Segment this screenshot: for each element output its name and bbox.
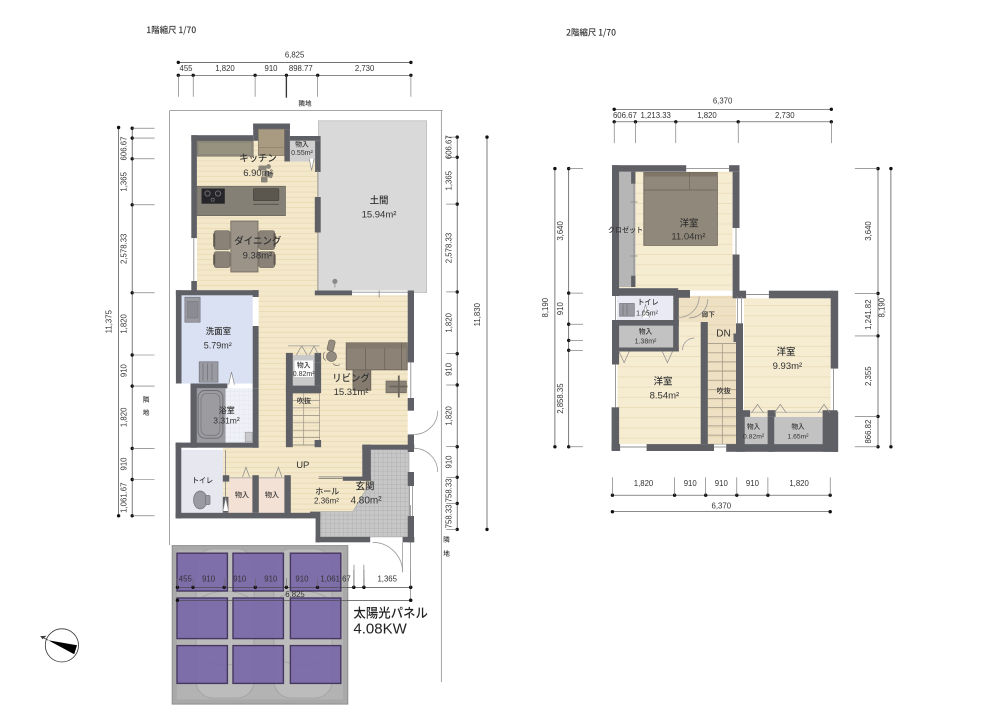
svg-text:606.67: 606.67 (613, 111, 637, 120)
svg-text:6,825: 6,825 (285, 590, 305, 599)
svg-text:910: 910 (264, 575, 278, 584)
svg-text:6,825: 6,825 (285, 51, 305, 60)
svg-text:UP: UP (296, 460, 309, 471)
svg-text:9.93m²: 9.93m² (773, 361, 803, 372)
svg-text:910: 910 (233, 575, 247, 584)
svg-text:606.67: 606.67 (444, 135, 453, 159)
svg-text:910: 910 (202, 575, 216, 584)
svg-text:2,578.33: 2,578.33 (120, 234, 129, 264)
svg-text:1,061.67: 1,061.67 (320, 575, 350, 584)
svg-text:9.38m²: 9.38m² (243, 251, 273, 262)
svg-text:2,730: 2,730 (775, 111, 795, 120)
svg-text:4.80m²: 4.80m² (350, 495, 382, 506)
svg-text:11,375: 11,375 (105, 309, 114, 333)
svg-text:910: 910 (444, 362, 453, 376)
svg-text:8.54m²: 8.54m² (650, 391, 680, 402)
svg-text:2,355: 2,355 (864, 366, 873, 386)
svg-text:910: 910 (715, 479, 729, 488)
svg-text:1,241.82: 1,241.82 (864, 300, 873, 330)
svg-text:1,365: 1,365 (444, 170, 453, 190)
svg-text:2,858.35: 2,858.35 (556, 383, 565, 414)
svg-text:455: 455 (179, 64, 193, 73)
svg-text:1,820: 1,820 (634, 479, 654, 488)
svg-text:1,820: 1,820 (444, 312, 453, 332)
svg-text:910: 910 (684, 479, 698, 488)
svg-text:6,370: 6,370 (713, 97, 733, 106)
svg-text:866.82: 866.82 (864, 420, 873, 444)
svg-text:6,370: 6,370 (712, 502, 732, 511)
svg-text:3,640: 3,640 (864, 221, 873, 241)
svg-text:1,820: 1,820 (444, 405, 453, 425)
svg-text:3,640: 3,640 (556, 220, 565, 240)
svg-text:1.05m²: 1.05m² (636, 311, 658, 318)
svg-text:758.33: 758.33 (444, 504, 453, 528)
svg-text:758.33: 758.33 (444, 478, 453, 502)
svg-text:11.04m²: 11.04m² (671, 232, 705, 243)
svg-text:11,830: 11,830 (473, 302, 482, 326)
svg-text:1,820: 1,820 (697, 111, 717, 120)
svg-text:1,820: 1,820 (215, 64, 235, 73)
svg-text:2,578.33: 2,578.33 (444, 233, 453, 263)
svg-text:4.08KW: 4.08KW (353, 621, 407, 638)
svg-text:6.90m²: 6.90m² (243, 168, 273, 179)
svg-text:2,730: 2,730 (355, 64, 375, 73)
svg-text:1,820: 1,820 (120, 407, 129, 427)
svg-text:0.55m²: 0.55m² (291, 150, 313, 157)
svg-text:3.31m²: 3.31m² (213, 415, 240, 425)
svg-text:606.67: 606.67 (120, 137, 129, 161)
svg-text:0.82m²: 0.82m² (293, 371, 315, 378)
svg-text:1,061.67: 1,061.67 (120, 483, 129, 513)
svg-text:1.65m²: 1.65m² (787, 433, 809, 440)
svg-text:910: 910 (120, 457, 129, 471)
svg-text:1.38m²: 1.38m² (635, 339, 657, 346)
svg-text:8,190: 8,190 (541, 297, 550, 317)
svg-text:910: 910 (444, 455, 453, 469)
svg-text:910: 910 (264, 64, 278, 73)
svg-text:1,365: 1,365 (377, 575, 397, 584)
svg-text:1,820: 1,820 (120, 313, 129, 333)
svg-text:1,365: 1,365 (120, 171, 129, 191)
svg-text:15.94m²: 15.94m² (362, 210, 397, 221)
svg-text:8,190: 8,190 (877, 297, 886, 317)
svg-text:1,820: 1,820 (789, 479, 809, 488)
svg-text:455: 455 (179, 575, 193, 584)
svg-text:5.79m²: 5.79m² (204, 340, 232, 350)
svg-text:15.31m²: 15.31m² (334, 387, 369, 398)
svg-text:910: 910 (295, 575, 309, 584)
svg-text:2.36m²: 2.36m² (314, 497, 339, 506)
svg-text:910: 910 (746, 479, 760, 488)
svg-text:910: 910 (120, 363, 129, 377)
svg-text:1,213.33: 1,213.33 (641, 111, 671, 120)
svg-text:0.82m²: 0.82m² (743, 433, 765, 440)
svg-text:898.77: 898.77 (289, 64, 313, 73)
svg-text:910: 910 (556, 302, 565, 316)
svg-text:DN: DN (716, 329, 730, 340)
